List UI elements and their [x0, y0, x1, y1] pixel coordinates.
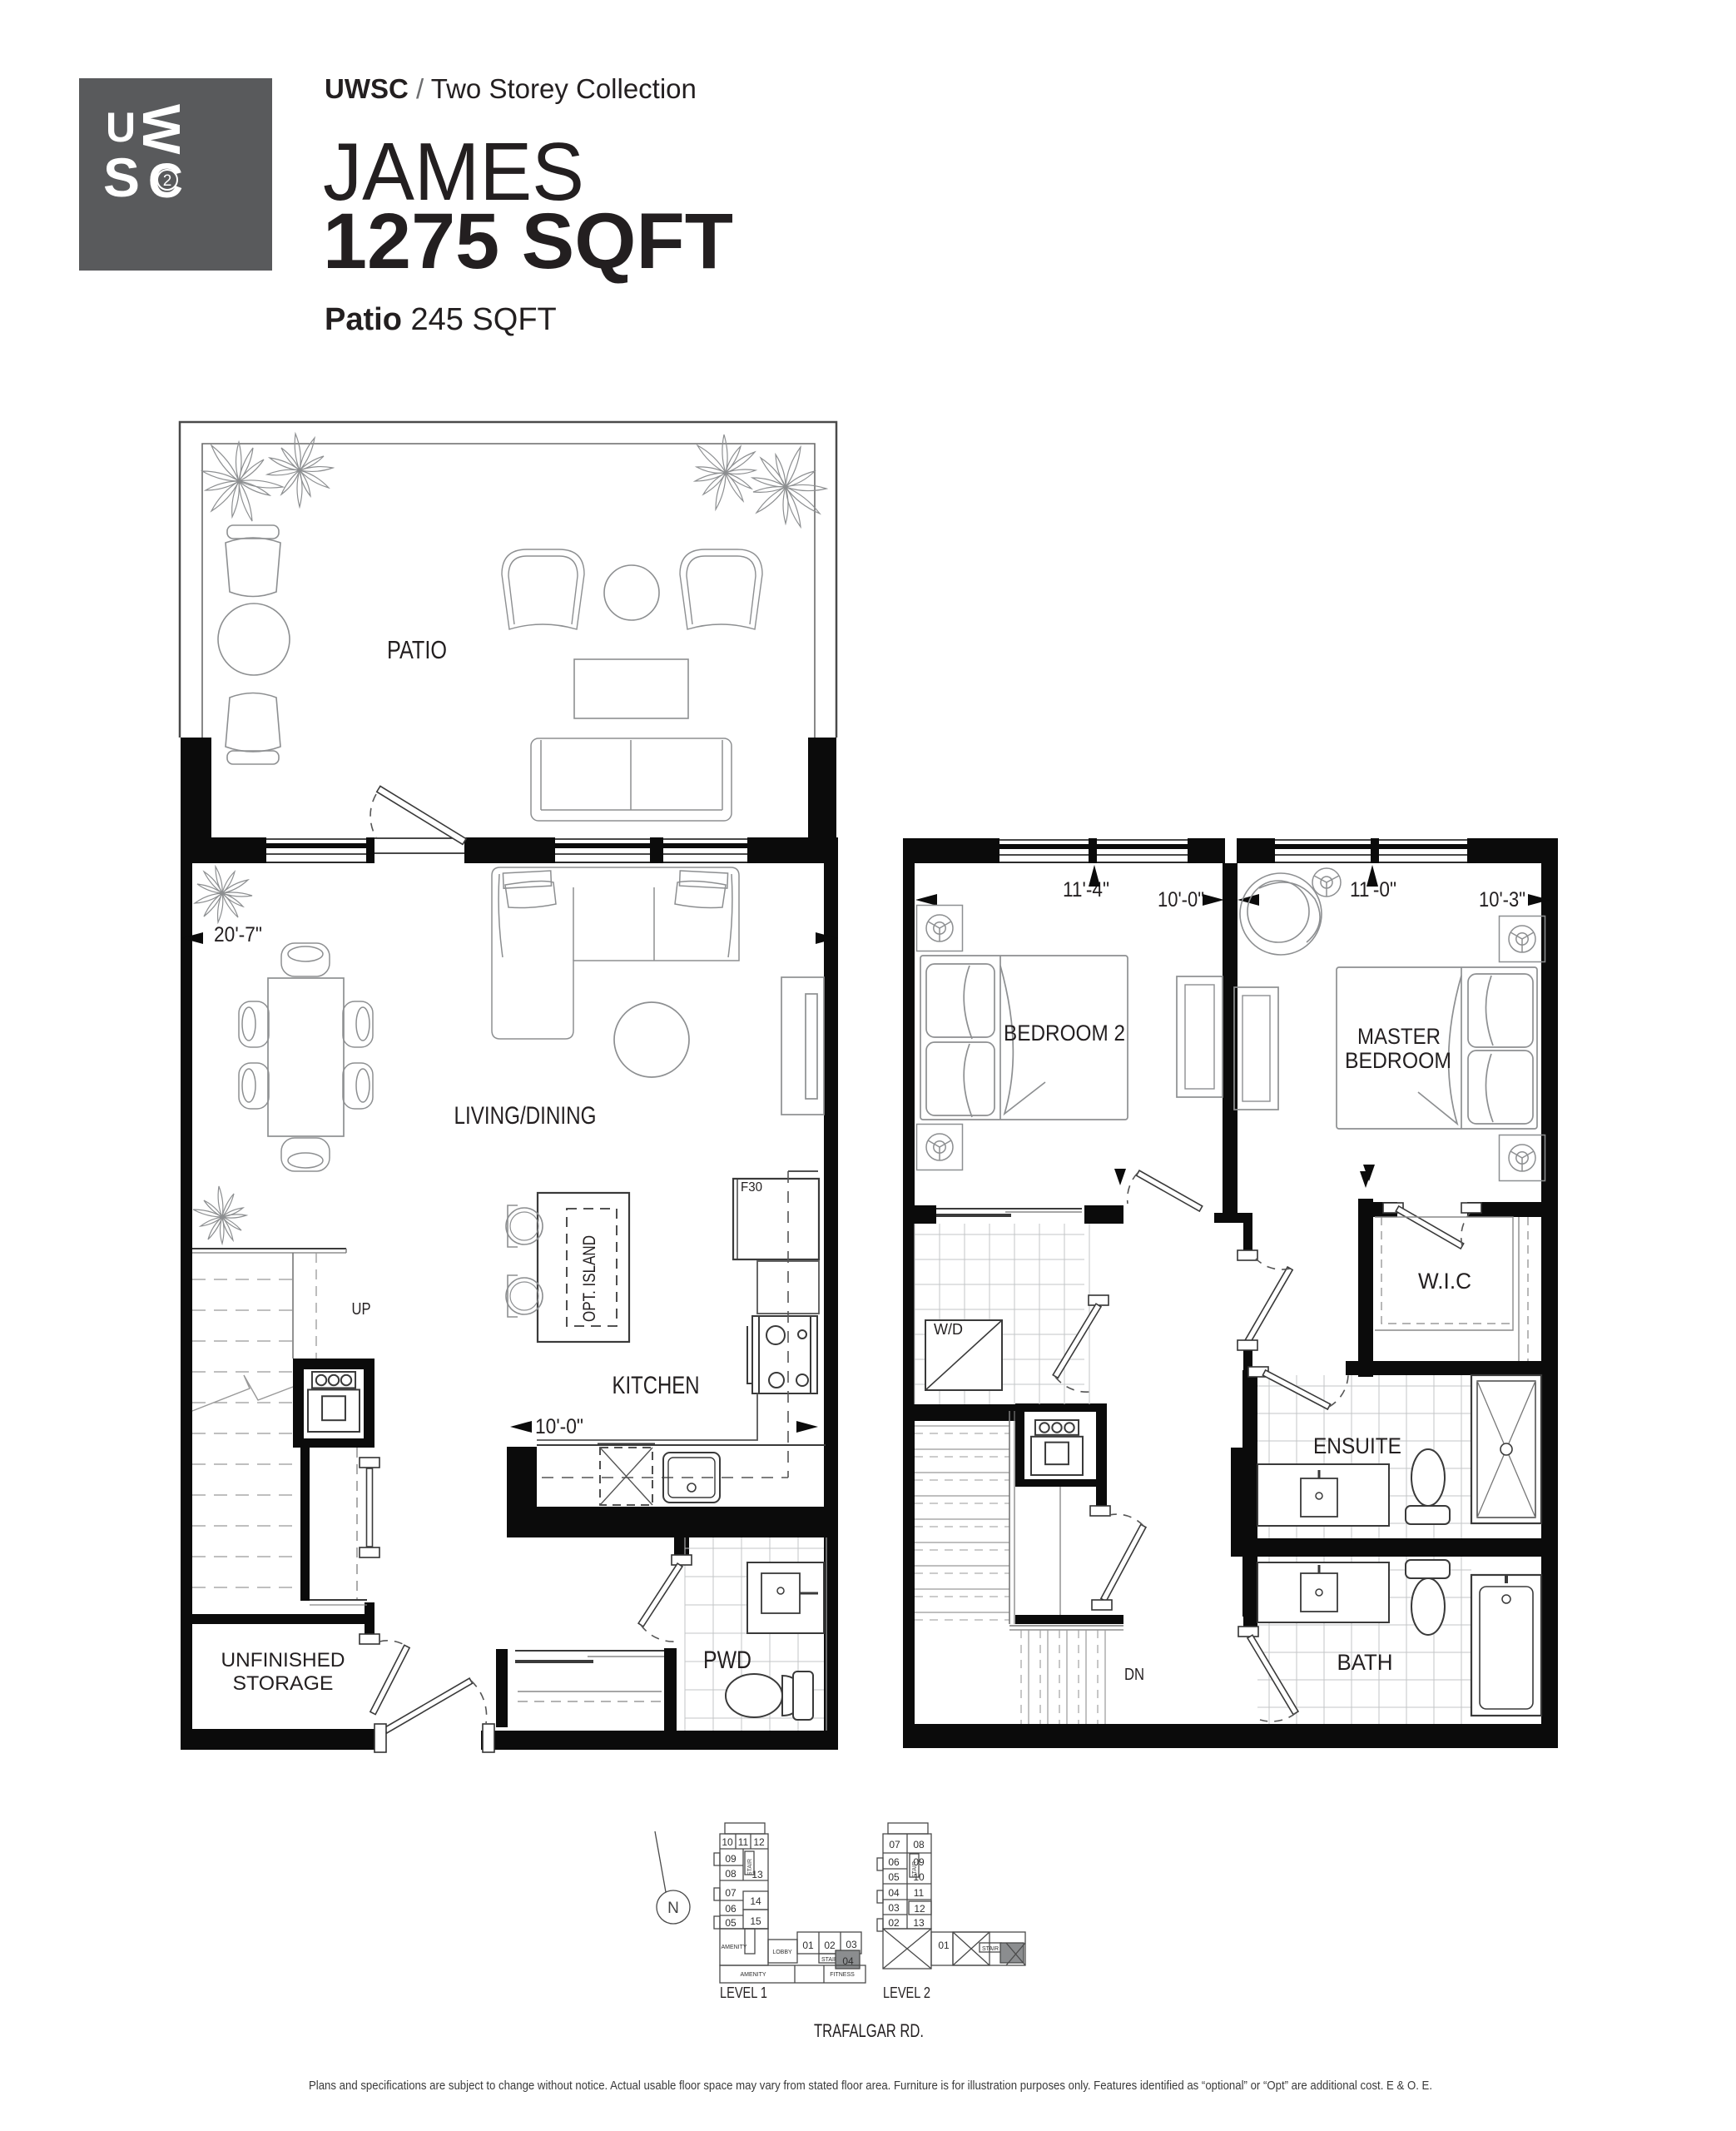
svg-text:10'-3": 10'-3" — [1479, 888, 1525, 912]
svg-text:W/D: W/D — [934, 1321, 963, 1338]
svg-text:09: 09 — [725, 1853, 737, 1865]
svg-text:MASTER: MASTER — [1357, 1024, 1441, 1049]
svg-text:LIVING/DINING: LIVING/DINING — [454, 1102, 597, 1130]
svg-text:BEDROOM: BEDROOM — [1345, 1048, 1451, 1073]
svg-text:STORAGE: STORAGE — [233, 1672, 334, 1695]
svg-text:W: W — [131, 104, 191, 155]
svg-text:STAIR: STAIR — [912, 1861, 918, 1878]
svg-text:Patio 245 SQFT: Patio 245 SQFT — [325, 302, 557, 337]
svg-text:10'-0": 10'-0" — [1158, 888, 1204, 912]
svg-text:11: 11 — [914, 1887, 925, 1899]
svg-text:FITNESS: FITNESS — [830, 1972, 855, 1978]
svg-text:15: 15 — [750, 1915, 761, 1927]
svg-text:12: 12 — [914, 1903, 925, 1915]
svg-text:11: 11 — [738, 1836, 749, 1848]
svg-text:N: N — [667, 1900, 679, 1917]
svg-text:PATIO: PATIO — [387, 635, 447, 664]
svg-text:BEDROOM 2: BEDROOM 2 — [1004, 1021, 1125, 1046]
svg-text:10: 10 — [722, 1836, 733, 1848]
svg-text:AMENITY: AMENITY — [721, 1945, 746, 1950]
svg-text:STAIR: STAIR — [982, 1946, 999, 1952]
svg-text:01: 01 — [938, 1940, 950, 1951]
svg-text:08: 08 — [913, 1839, 925, 1850]
svg-text:UWSC / Two Storey Collection: UWSC / Two Storey Collection — [325, 73, 697, 104]
svg-text:1275 SQFT: 1275 SQFT — [323, 197, 733, 286]
svg-text:DN: DN — [1124, 1666, 1144, 1684]
svg-text:ENSUITE: ENSUITE — [1313, 1433, 1401, 1458]
svg-text:07: 07 — [725, 1887, 737, 1899]
svg-text:05: 05 — [888, 1871, 900, 1883]
svg-text:06: 06 — [888, 1856, 900, 1868]
svg-text:UNFINISHED: UNFINISHED — [221, 1649, 345, 1672]
svg-text:20'-7": 20'-7" — [214, 923, 262, 946]
svg-text:02: 02 — [824, 1940, 836, 1951]
svg-text:14: 14 — [750, 1895, 761, 1907]
svg-text:AMENITY: AMENITY — [740, 1972, 766, 1978]
svg-text:OPT. ISLAND: OPT. ISLAND — [580, 1235, 599, 1322]
svg-text:07: 07 — [889, 1839, 900, 1850]
svg-text:UP: UP — [352, 1300, 371, 1319]
svg-text:PWD: PWD — [703, 1647, 751, 1674]
svg-text:F30: F30 — [741, 1180, 762, 1195]
svg-text:LEVEL 1: LEVEL 1 — [720, 1984, 767, 2001]
svg-text:01: 01 — [802, 1940, 814, 1951]
svg-text:TRAFALGAR RD.: TRAFALGAR RD. — [814, 2020, 924, 2041]
svg-text:02: 02 — [888, 1917, 900, 1929]
svg-text:11'-4": 11'-4" — [1063, 878, 1109, 902]
svg-text:W.I.C: W.I.C — [1418, 1269, 1471, 1294]
svg-text:06: 06 — [725, 1903, 737, 1915]
svg-text:03: 03 — [888, 1902, 900, 1914]
svg-text:04: 04 — [888, 1887, 900, 1899]
svg-text:13: 13 — [913, 1917, 925, 1929]
svg-text:2: 2 — [163, 172, 172, 190]
svg-text:05: 05 — [725, 1917, 737, 1929]
svg-text:STAIR: STAIR — [747, 1859, 753, 1875]
svg-text:S: S — [103, 147, 140, 208]
svg-text:12: 12 — [753, 1836, 765, 1848]
svg-text:LEVEL 2: LEVEL 2 — [883, 1984, 930, 2001]
svg-text:U: U — [106, 104, 136, 151]
svg-text:08: 08 — [725, 1868, 737, 1880]
svg-text:BATH: BATH — [1337, 1650, 1393, 1675]
svg-text:KITCHEN: KITCHEN — [613, 1372, 700, 1399]
svg-text:10'-0": 10'-0" — [535, 1415, 583, 1438]
svg-text:Plans and specifications are s: Plans and specifications are subject to … — [309, 2079, 1432, 2093]
svg-text:03: 03 — [846, 1939, 857, 1950]
svg-text:LOBBY: LOBBY — [772, 1950, 792, 1955]
